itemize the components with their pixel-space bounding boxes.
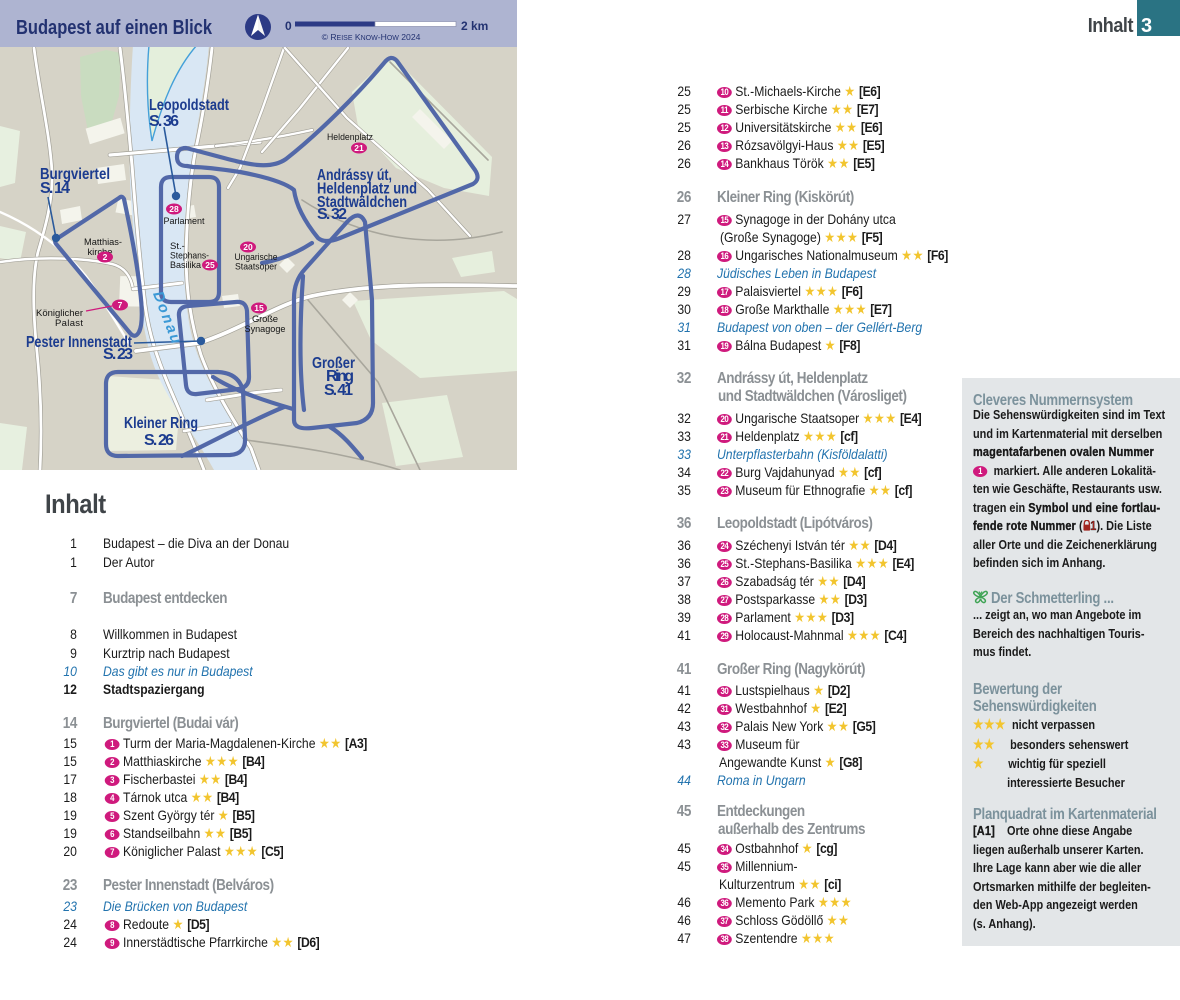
svg-text:S. 14: S. 14 (40, 180, 70, 197)
svg-text:Palast: Palast (55, 318, 83, 329)
